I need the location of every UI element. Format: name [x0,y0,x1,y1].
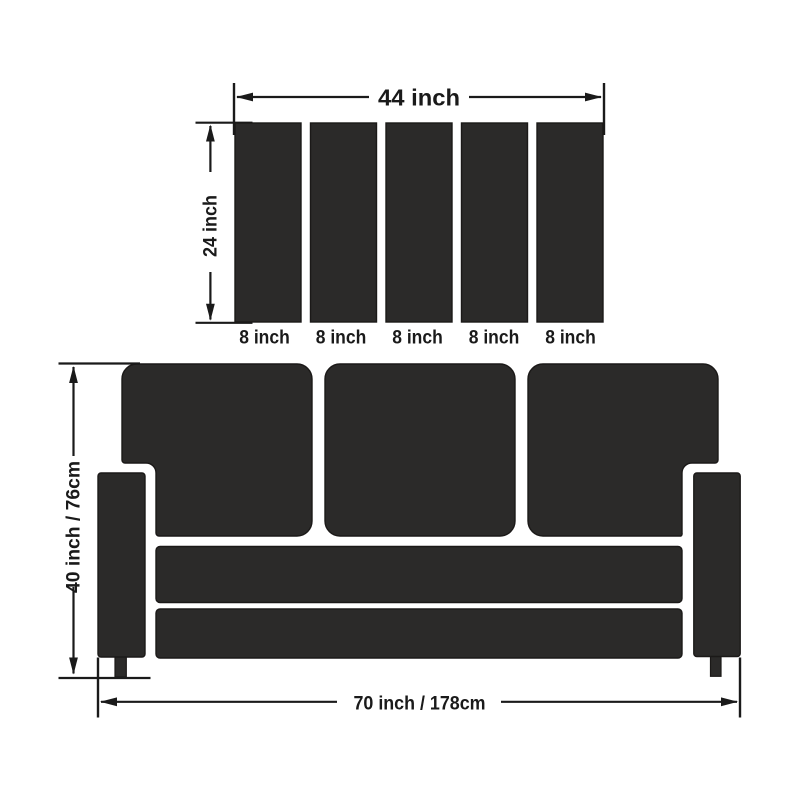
svg-text:40 inch / 76cm: 40 inch / 76cm [64,461,85,593]
svg-text:44 inch: 44 inch [378,85,460,111]
svg-text:8 inch: 8 inch [469,328,520,349]
svg-text:24 inch: 24 inch [201,195,222,257]
svg-text:8 inch: 8 inch [239,328,290,349]
svg-text:8 inch: 8 inch [545,328,596,349]
svg-text:70 inch / 178cm: 70 inch / 178cm [354,694,486,715]
svg-text:8 inch: 8 inch [316,328,367,349]
svg-text:8 inch: 8 inch [392,328,443,349]
